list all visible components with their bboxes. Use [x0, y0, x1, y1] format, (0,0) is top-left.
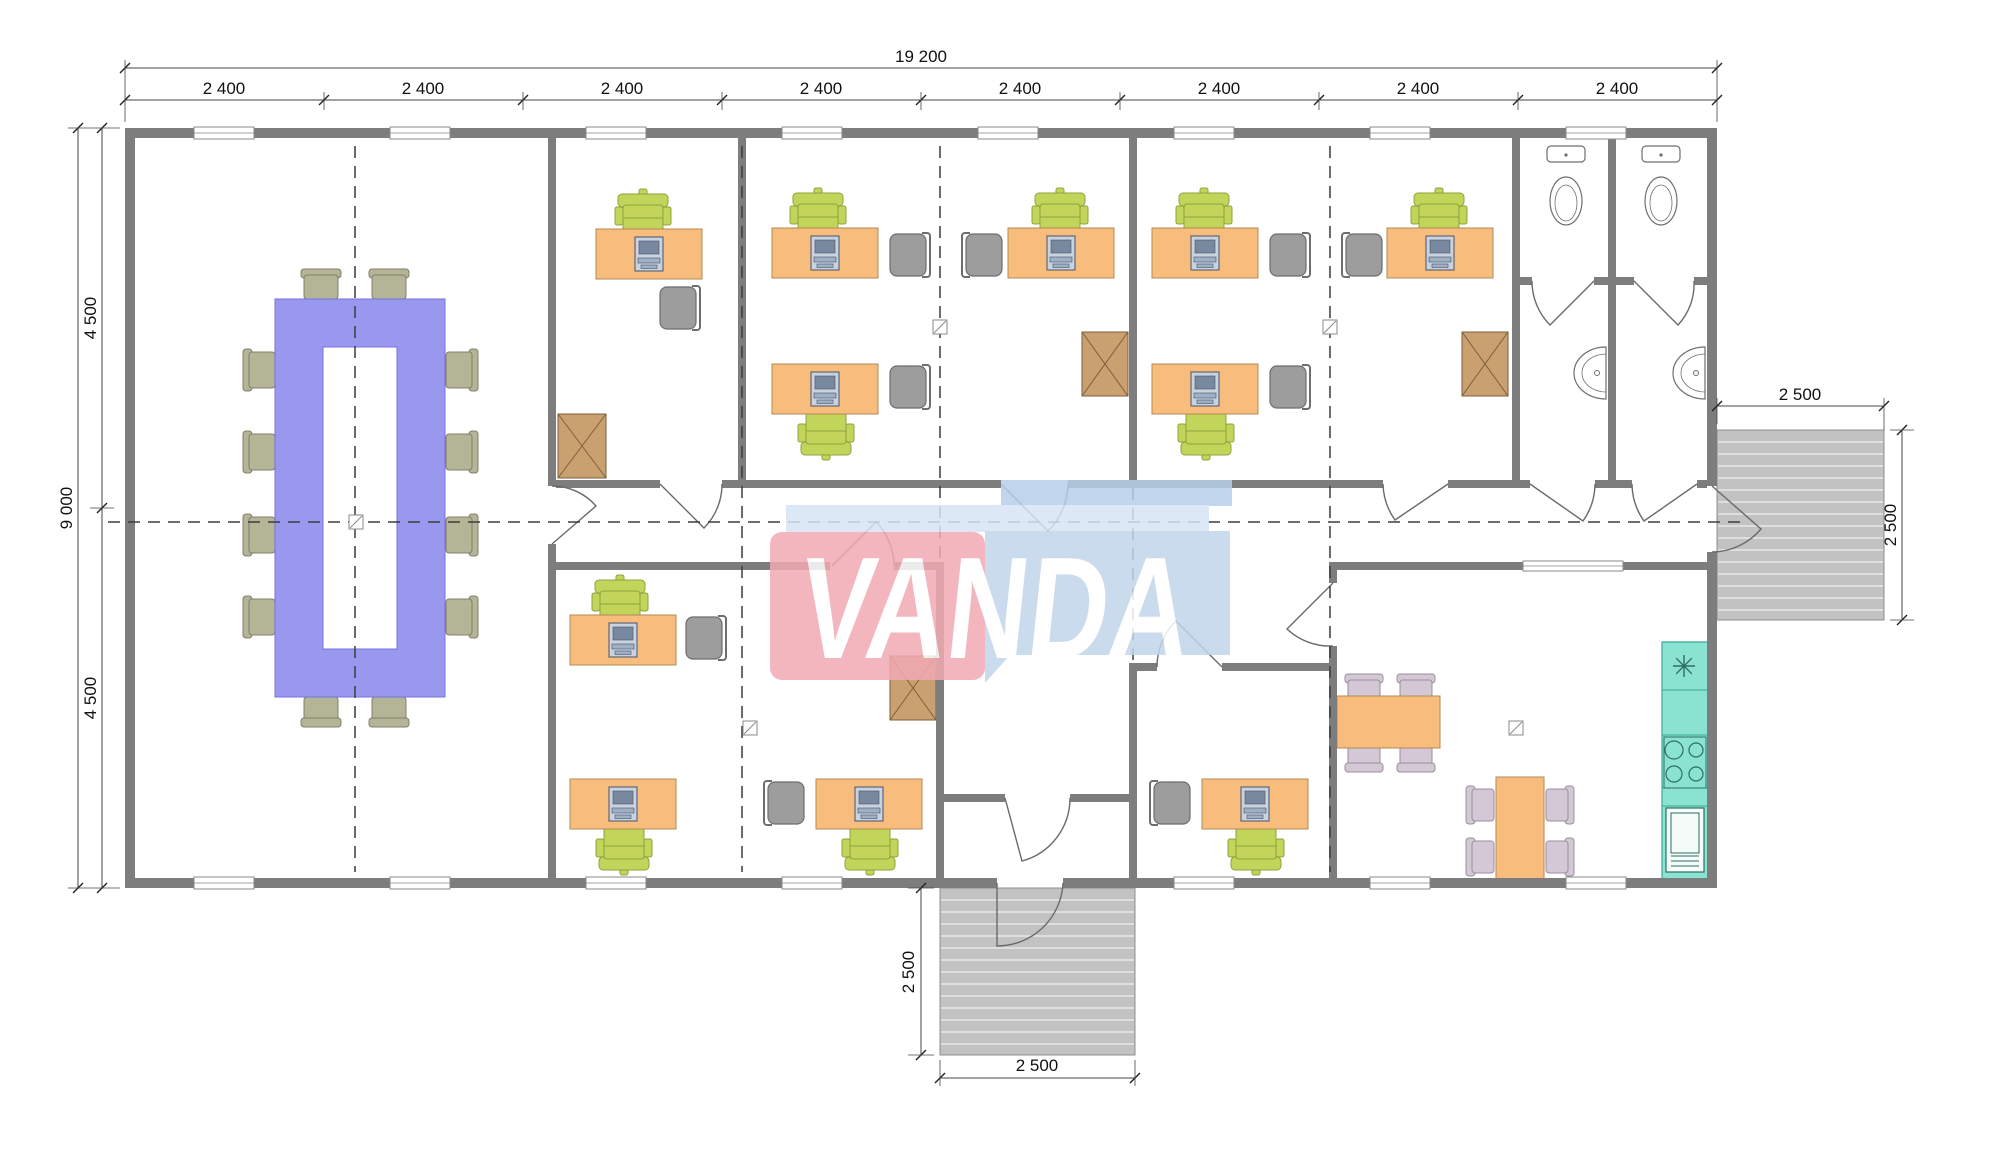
computer-icon [635, 237, 663, 271]
wall [722, 480, 1001, 488]
task-chair [1228, 827, 1284, 875]
conference-chair [301, 697, 341, 727]
conference-chair [243, 349, 275, 391]
window [1566, 127, 1626, 139]
grid-marker [349, 515, 363, 529]
door [1632, 484, 1697, 521]
wash-basin [1673, 347, 1705, 399]
door [1005, 798, 1070, 861]
window [782, 127, 842, 139]
watermark-text: VANDA [793, 526, 1200, 689]
storage-cabinet [1462, 332, 1508, 396]
sink-star-icon [1673, 655, 1695, 677]
dim-bay-3: 2 400 [601, 79, 644, 98]
dim-bay-2: 2 400 [402, 79, 445, 98]
conference-chair [243, 431, 275, 473]
wall [1516, 277, 1532, 285]
dining-table [1496, 777, 1544, 883]
vanda-watermark: VANDA [770, 480, 1232, 689]
grid-marker [1509, 721, 1523, 735]
conference-chair [446, 431, 478, 473]
dining-chair [1466, 786, 1494, 824]
toilet [1547, 146, 1585, 225]
window [1370, 877, 1430, 889]
window [1370, 127, 1430, 139]
wall [125, 138, 135, 878]
guest-chair [660, 286, 700, 330]
dim-bay-6: 2 400 [1198, 79, 1241, 98]
window [1566, 877, 1626, 889]
dim-half-depth-top: 4 500 [81, 297, 100, 340]
guest-chair [1270, 233, 1310, 277]
wall [1129, 663, 1137, 878]
guest-chair [1342, 233, 1382, 277]
computer-icon [811, 236, 839, 270]
window [782, 877, 842, 889]
fridge [1666, 808, 1704, 872]
window [194, 127, 254, 139]
task-chair [842, 827, 898, 875]
dim-bottom-porch-depth: 2 500 [899, 951, 918, 994]
computer-icon [1191, 236, 1219, 270]
dim-bay-8: 2 400 [1596, 79, 1639, 98]
computer-icon [1426, 236, 1454, 270]
conference-chair [446, 514, 478, 556]
conference-chair [243, 596, 275, 638]
window [1523, 561, 1623, 571]
task-chair [798, 412, 854, 460]
computer-icon [1241, 787, 1269, 821]
task-chair [596, 827, 652, 875]
dim-bay-4: 2 400 [800, 79, 843, 98]
guest-chair [1270, 365, 1310, 409]
conference-chair [243, 514, 275, 556]
storage-cabinet [1082, 332, 1128, 396]
dim-half-depth-bottom: 4 500 [81, 677, 100, 720]
door [1532, 281, 1594, 325]
conference-chair [369, 697, 409, 727]
wash-basin [1574, 347, 1606, 399]
door [552, 486, 596, 544]
window [1174, 877, 1234, 889]
window [978, 127, 1038, 139]
computer-icon [811, 372, 839, 406]
wall [1697, 480, 1707, 488]
computer-icon [1191, 372, 1219, 406]
guest-chair [890, 365, 930, 409]
dining-chair [1546, 786, 1574, 824]
guest-chair [890, 233, 930, 277]
dim-bottom-porch-width: 2 500 [1016, 1056, 1059, 1075]
wall [1329, 646, 1337, 878]
wall [1129, 138, 1137, 480]
wall [1222, 663, 1333, 671]
dining-chair [1546, 838, 1574, 876]
porch [1717, 430, 1884, 620]
floor-plan-drawing: 19 200 2 400 2 400 2 400 2 400 2 400 2 4… [0, 0, 2000, 1160]
dim-bay-7: 2 400 [1397, 79, 1440, 98]
computer-icon [609, 787, 637, 821]
floor-plan-page: 19 200 2 400 2 400 2 400 2 400 2 400 2 4… [0, 0, 2000, 1160]
porch [940, 888, 1135, 1055]
wall [1594, 277, 1634, 285]
grid-marker [1323, 320, 1337, 334]
dim-total-depth: 9 000 [57, 487, 76, 530]
conference-chair [446, 596, 478, 638]
conference-chair [301, 269, 341, 299]
wall [125, 878, 997, 888]
dim-right-porch-width: 2 500 [1779, 385, 1822, 404]
wall [125, 128, 1717, 138]
task-chair [1178, 412, 1234, 460]
grid-marker [743, 721, 757, 735]
wall [548, 138, 556, 486]
door [1634, 281, 1694, 325]
dining-table [1337, 696, 1440, 748]
dim-right-porch-depth: 2 500 [1881, 504, 1900, 547]
door [1530, 484, 1595, 521]
watermark-top-strip [1001, 480, 1232, 506]
guest-chair [764, 781, 804, 825]
dim-bay-1: 2 400 [203, 79, 246, 98]
computer-icon [1047, 236, 1075, 270]
computer-icon [609, 623, 637, 657]
wall [1707, 552, 1717, 878]
wall [1070, 794, 1137, 802]
window [1174, 127, 1234, 139]
wall [548, 544, 556, 878]
window [586, 127, 646, 139]
door [1383, 484, 1448, 520]
wall [1707, 138, 1717, 486]
grid-marker [933, 320, 947, 334]
guest-chair [686, 616, 726, 660]
toilet [1642, 146, 1680, 225]
computer-icon [855, 787, 883, 821]
wall [1448, 480, 1530, 488]
conference-table [275, 299, 445, 697]
conference-chair [446, 349, 478, 391]
wall [1694, 277, 1707, 285]
door [1287, 583, 1333, 646]
window [390, 127, 450, 139]
dim-bay-5: 2 400 [999, 79, 1042, 98]
dining-chair [1466, 838, 1494, 876]
dim-overall-width: 19 200 [895, 47, 947, 66]
wall [936, 794, 1005, 802]
window [390, 877, 450, 889]
storage-cabinet [558, 414, 606, 478]
guest-chair [1150, 781, 1190, 825]
wall [1512, 138, 1520, 480]
guest-chair [962, 233, 1002, 277]
wall [1608, 138, 1616, 480]
wall [1595, 480, 1632, 488]
window [586, 877, 646, 889]
conference-chair [369, 269, 409, 299]
wall [556, 480, 660, 488]
window [194, 877, 254, 889]
